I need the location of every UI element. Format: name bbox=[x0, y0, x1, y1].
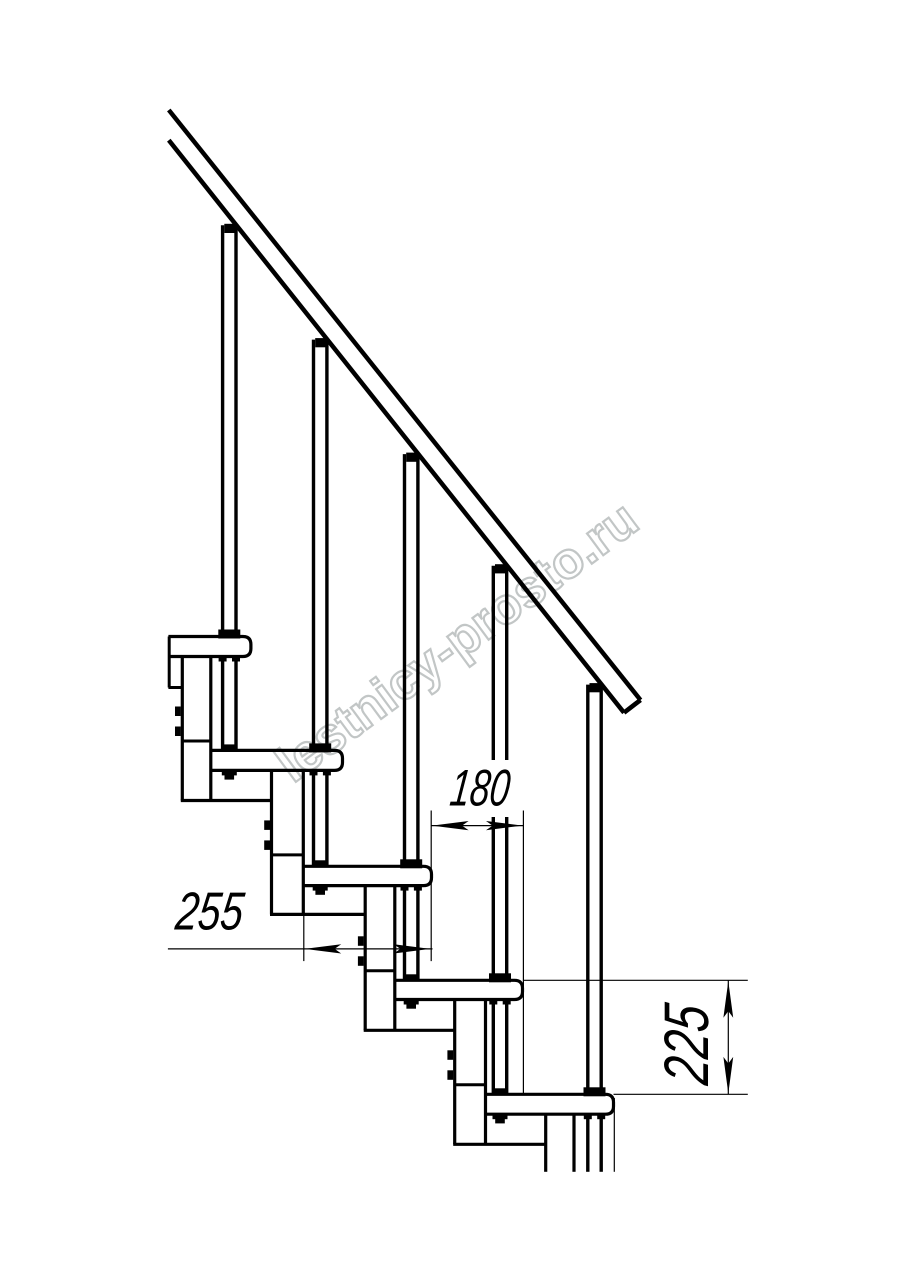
svg-text:255: 255 bbox=[172, 882, 248, 942]
svg-text:180: 180 bbox=[447, 760, 513, 817]
svg-text:225: 225 bbox=[651, 999, 722, 1088]
